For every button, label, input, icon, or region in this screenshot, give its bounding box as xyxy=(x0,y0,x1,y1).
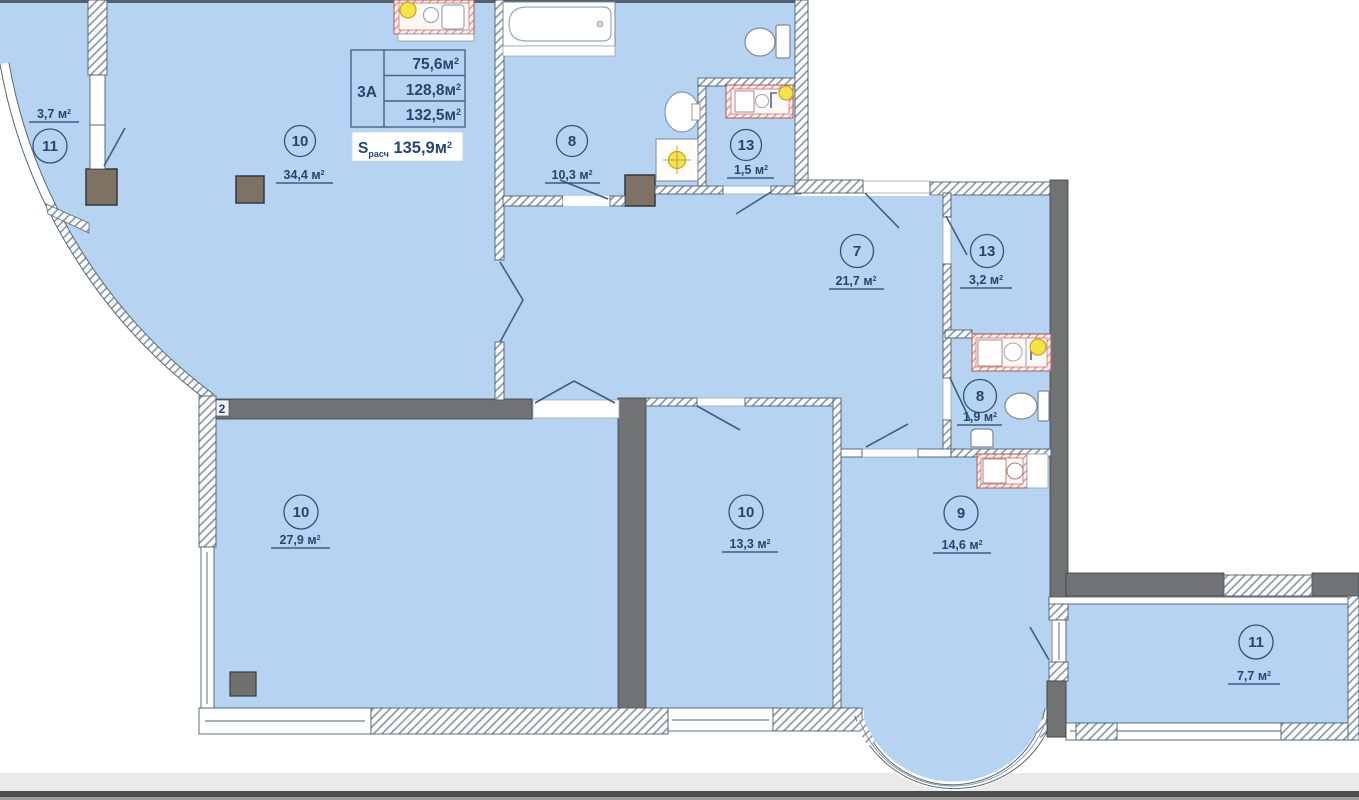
svg-text:75,6м2: 75,6м2 xyxy=(412,56,459,73)
svg-text:13,3 м2: 13,3 м2 xyxy=(730,537,771,551)
svg-text:13: 13 xyxy=(979,243,996,260)
svg-text:11: 11 xyxy=(42,138,58,155)
svg-text:2: 2 xyxy=(219,402,226,416)
svg-text:1,9 м2: 1,9 м2 xyxy=(963,410,997,424)
svg-text:10: 10 xyxy=(293,504,310,521)
svg-text:3,2 м2: 3,2 м2 xyxy=(969,273,1003,287)
svg-text:3,7 м2: 3,7 м2 xyxy=(37,107,71,121)
svg-text:7: 7 xyxy=(853,243,861,260)
svg-text:14,6 м2: 14,6 м2 xyxy=(942,538,983,552)
svg-text:34,4 м2: 34,4 м2 xyxy=(284,168,325,182)
svg-text:1,5 м2: 1,5 м2 xyxy=(734,163,768,177)
svg-text:132,5м2: 132,5м2 xyxy=(406,107,461,124)
svg-text:10,3 м2: 10,3 м2 xyxy=(552,168,593,182)
svg-text:11: 11 xyxy=(1248,634,1264,651)
svg-text:21,7 м2: 21,7 м2 xyxy=(836,274,877,288)
svg-text:128,8м2: 128,8м2 xyxy=(406,82,461,99)
svg-text:8: 8 xyxy=(568,133,576,150)
svg-text:27,9 м2: 27,9 м2 xyxy=(280,533,321,547)
svg-text:10: 10 xyxy=(292,133,309,150)
svg-text:13: 13 xyxy=(738,137,755,154)
svg-text:8: 8 xyxy=(976,388,984,405)
svg-text:3А: 3А xyxy=(357,84,377,101)
svg-text:7,7 м2: 7,7 м2 xyxy=(1237,669,1271,683)
svg-text:9: 9 xyxy=(957,505,965,522)
svg-text:10: 10 xyxy=(738,504,755,521)
